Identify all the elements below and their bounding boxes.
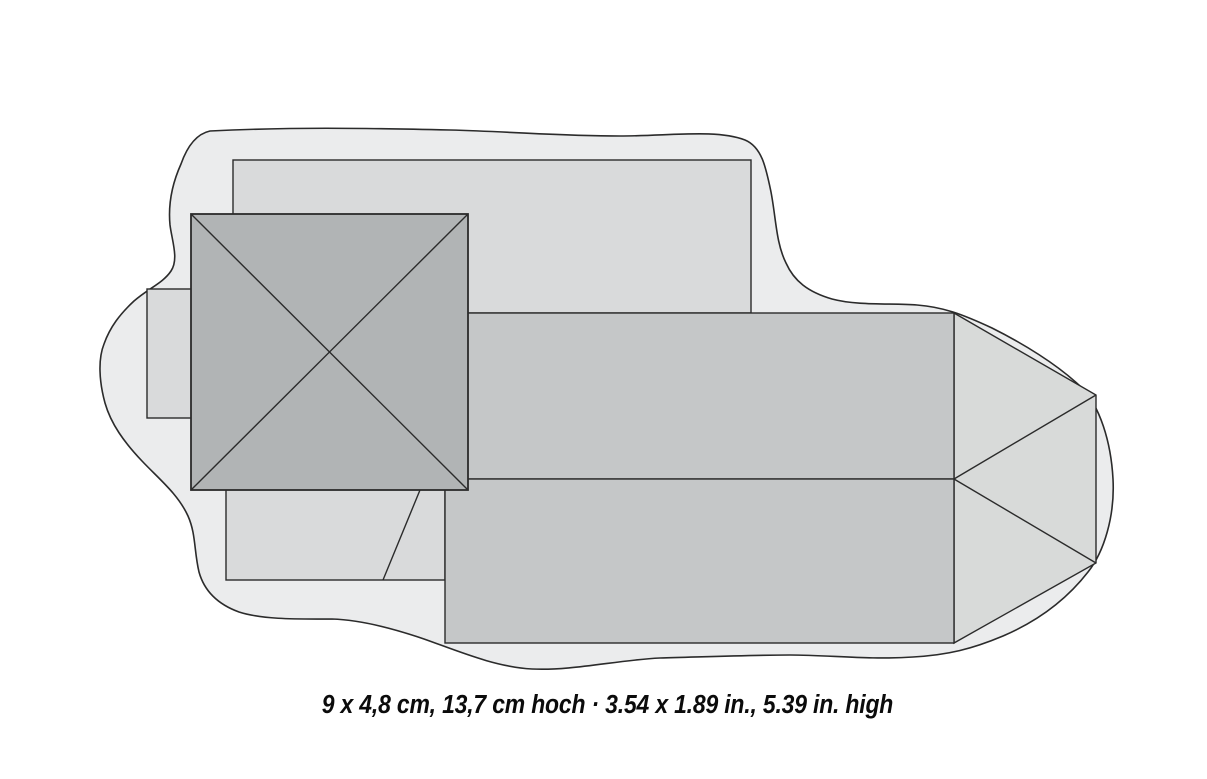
- apse-hip-roof: [954, 313, 1096, 643]
- side-annex-roof: [226, 489, 445, 580]
- porch: [147, 289, 195, 418]
- building-footprint-plan: [0, 0, 1207, 779]
- nave-roof-lower-slope: [445, 479, 954, 643]
- nave-roof-upper-slope: [460, 313, 954, 479]
- footprint-diagram: 9 x 4,8 cm, 13,7 cm hoch · 3.54 x 1.89 i…: [0, 0, 1207, 779]
- caption-row: 9 x 4,8 cm, 13,7 cm hoch · 3.54 x 1.89 i…: [7, 691, 1207, 720]
- dimensions-caption: 9 x 4,8 cm, 13,7 cm hoch · 3.54 x 1.89 i…: [321, 691, 892, 720]
